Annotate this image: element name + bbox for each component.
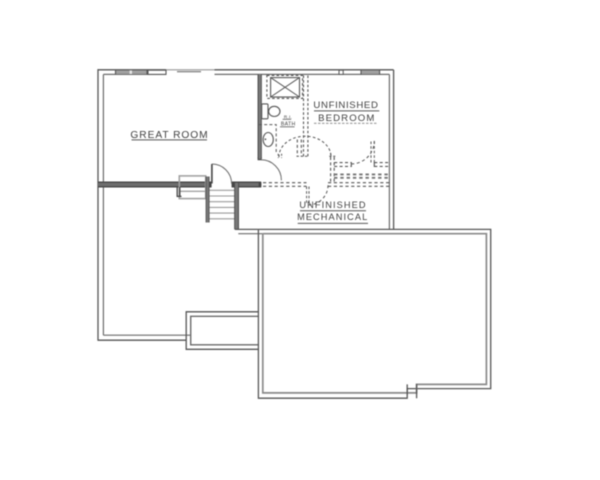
svg-text:BEDROOM: BEDROOM — [318, 113, 375, 124]
svg-text:R.I.: R.I. — [284, 114, 292, 119]
svg-text:UNFINISHED: UNFINISHED — [299, 200, 366, 210]
svg-text:UNFINISHED: UNFINISHED — [313, 100, 378, 111]
svg-text:MECHANICAL: MECHANICAL — [297, 212, 368, 222]
svg-text:GREAT ROOM: GREAT ROOM — [130, 130, 208, 141]
